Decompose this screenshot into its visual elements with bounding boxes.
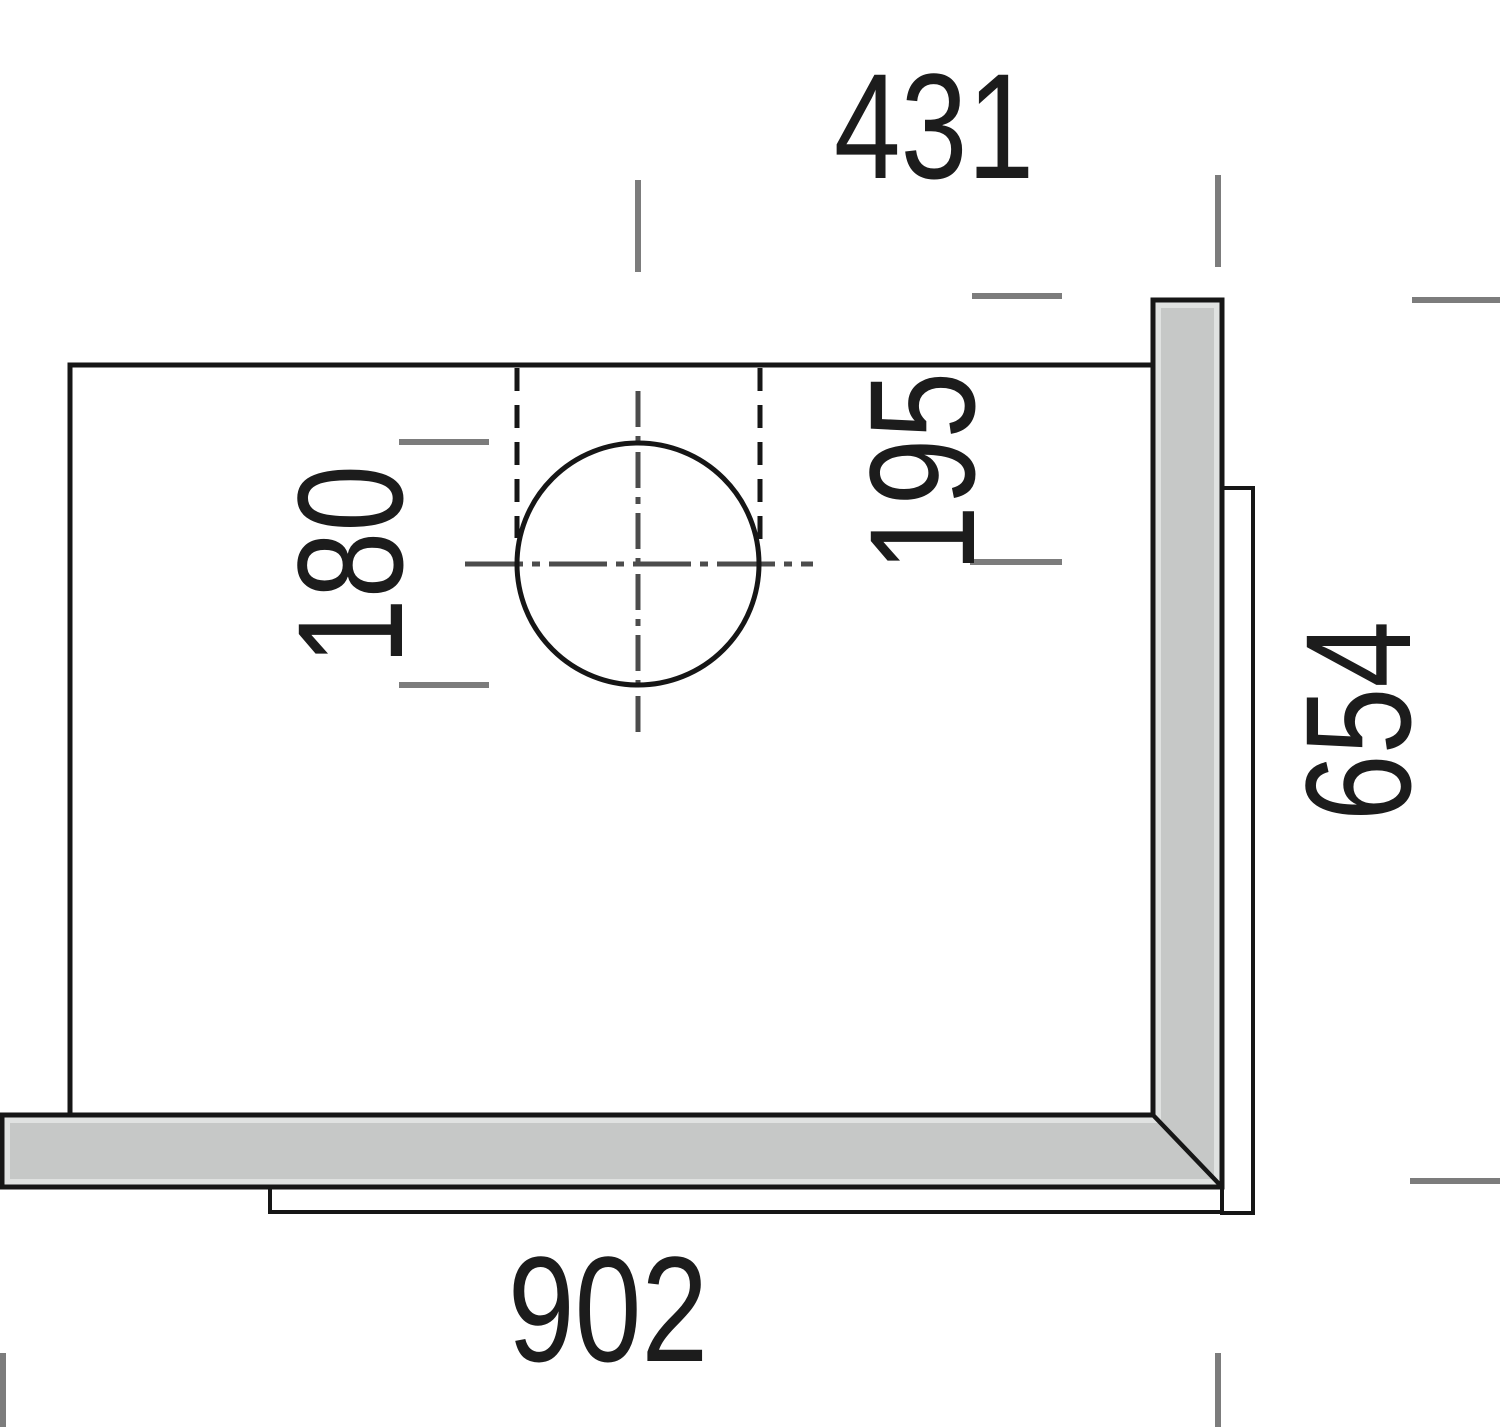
dim-label-side-depth: 654 [1283,621,1433,821]
dim-label-bottom-width: 902 [508,1234,708,1384]
wall-l-shape [2,300,1222,1187]
outer-panel-right [1222,488,1253,1213]
dim-label-flue-center-offset: 195 [847,372,997,572]
dim-label-top-width: 431 [834,51,1034,201]
wall-l-shape-bevel [10,308,1214,1179]
technical-drawing-canvas: 431 195 180 654 902 [0,0,1500,1427]
dim-label-flue-diameter: 180 [275,465,425,665]
